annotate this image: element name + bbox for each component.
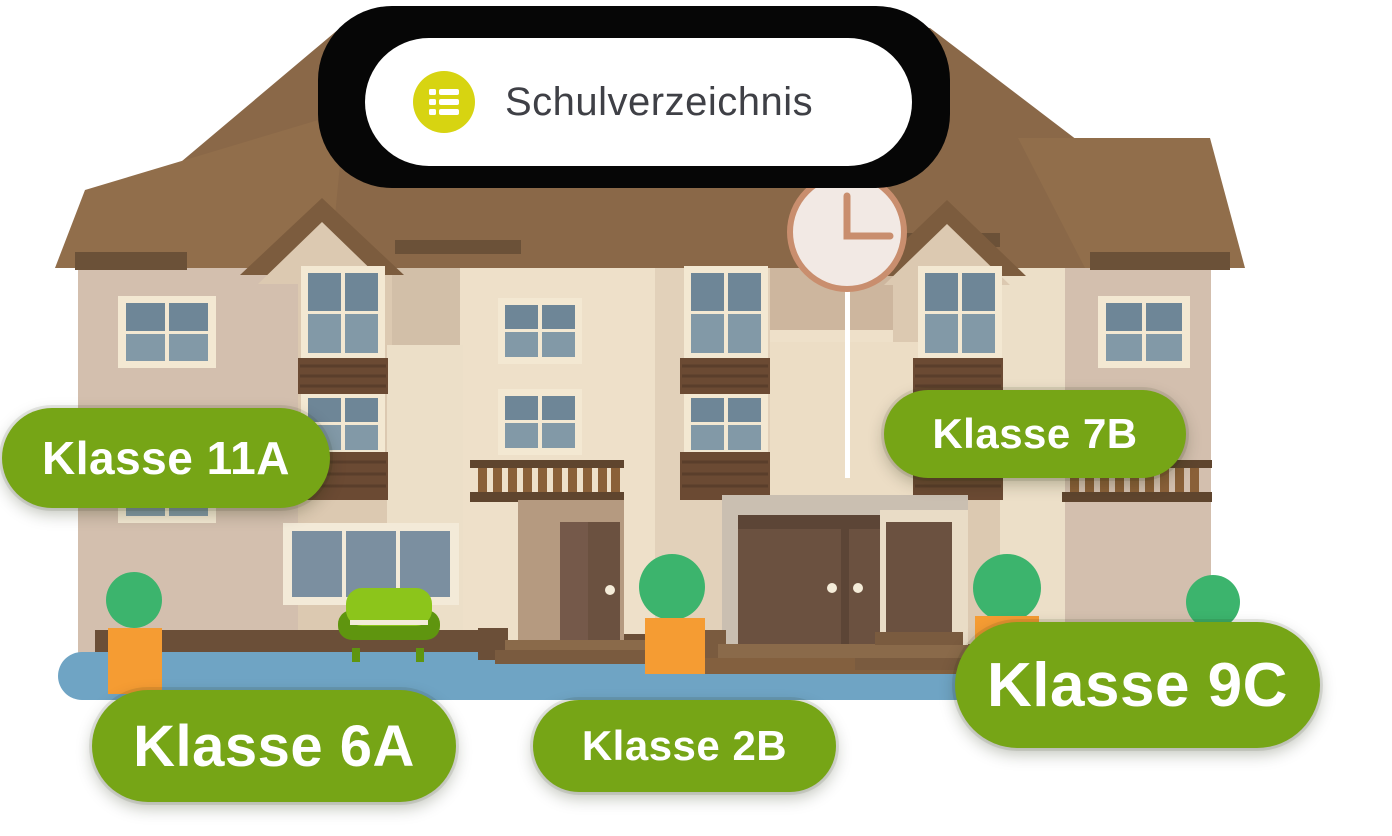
school-directory-screen: Schulverzeichnis Klasse 11A Klasse 7B Kl… [0,0,1392,836]
balcony-left [470,460,624,502]
header-banner: Schulverzeichnis [365,38,912,166]
class-button-2b[interactable]: Klasse 2B [533,700,836,792]
class-button-6a[interactable]: Klasse 6A [92,690,456,802]
class-button-11a[interactable]: Klasse 11A [2,408,330,508]
class-button-7b[interactable]: Klasse 7B [884,390,1186,478]
class-button-9c[interactable]: Klasse 9C [955,622,1320,748]
list-icon [413,71,475,133]
page-title: Schulverzeichnis [505,80,813,125]
